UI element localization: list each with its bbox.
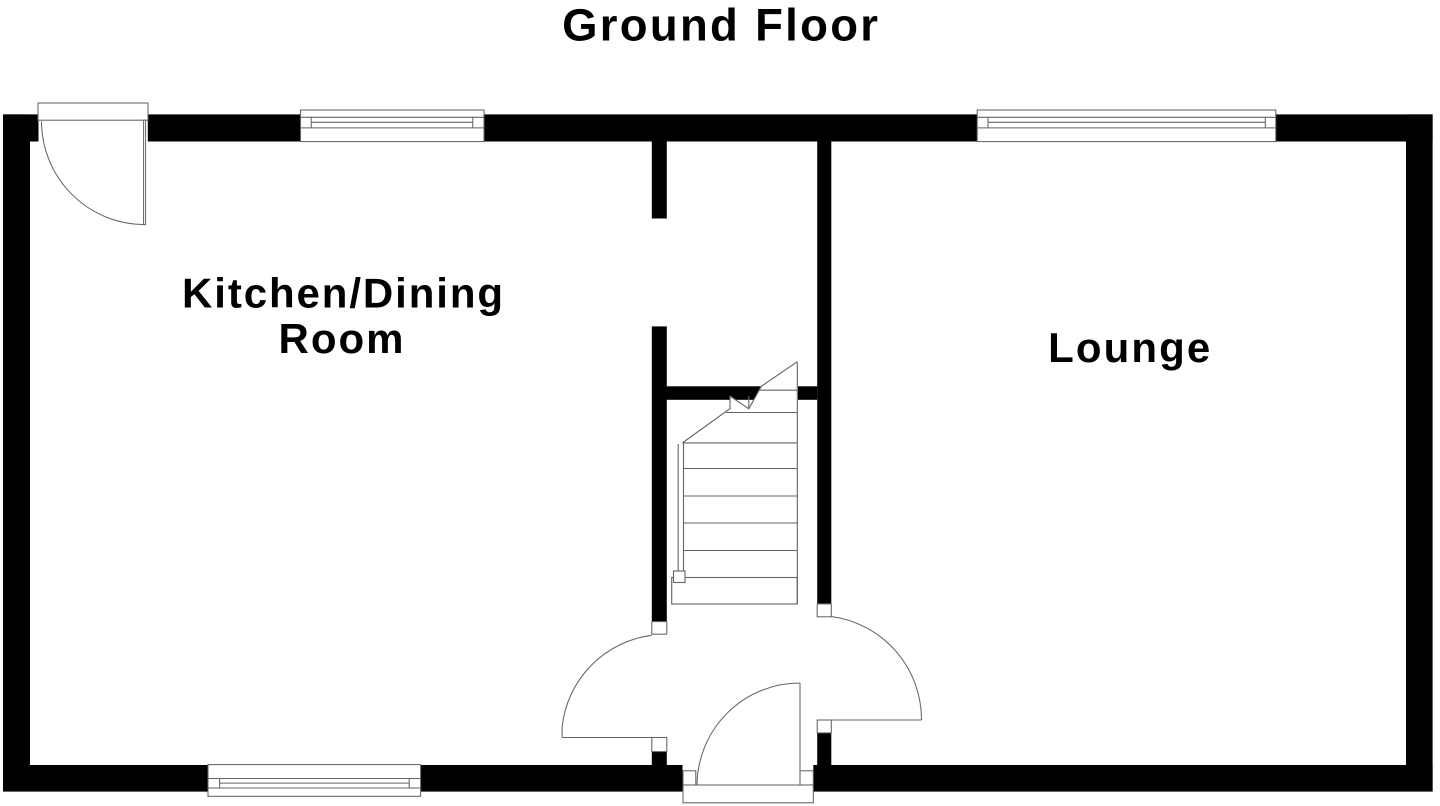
svg-text:Room: Room [279, 315, 406, 362]
svg-text:Kitchen/Dining: Kitchen/Dining [182, 269, 505, 316]
svg-text:Lounge: Lounge [1048, 324, 1212, 371]
svg-text:Ground Floor: Ground Floor [562, 0, 880, 50]
